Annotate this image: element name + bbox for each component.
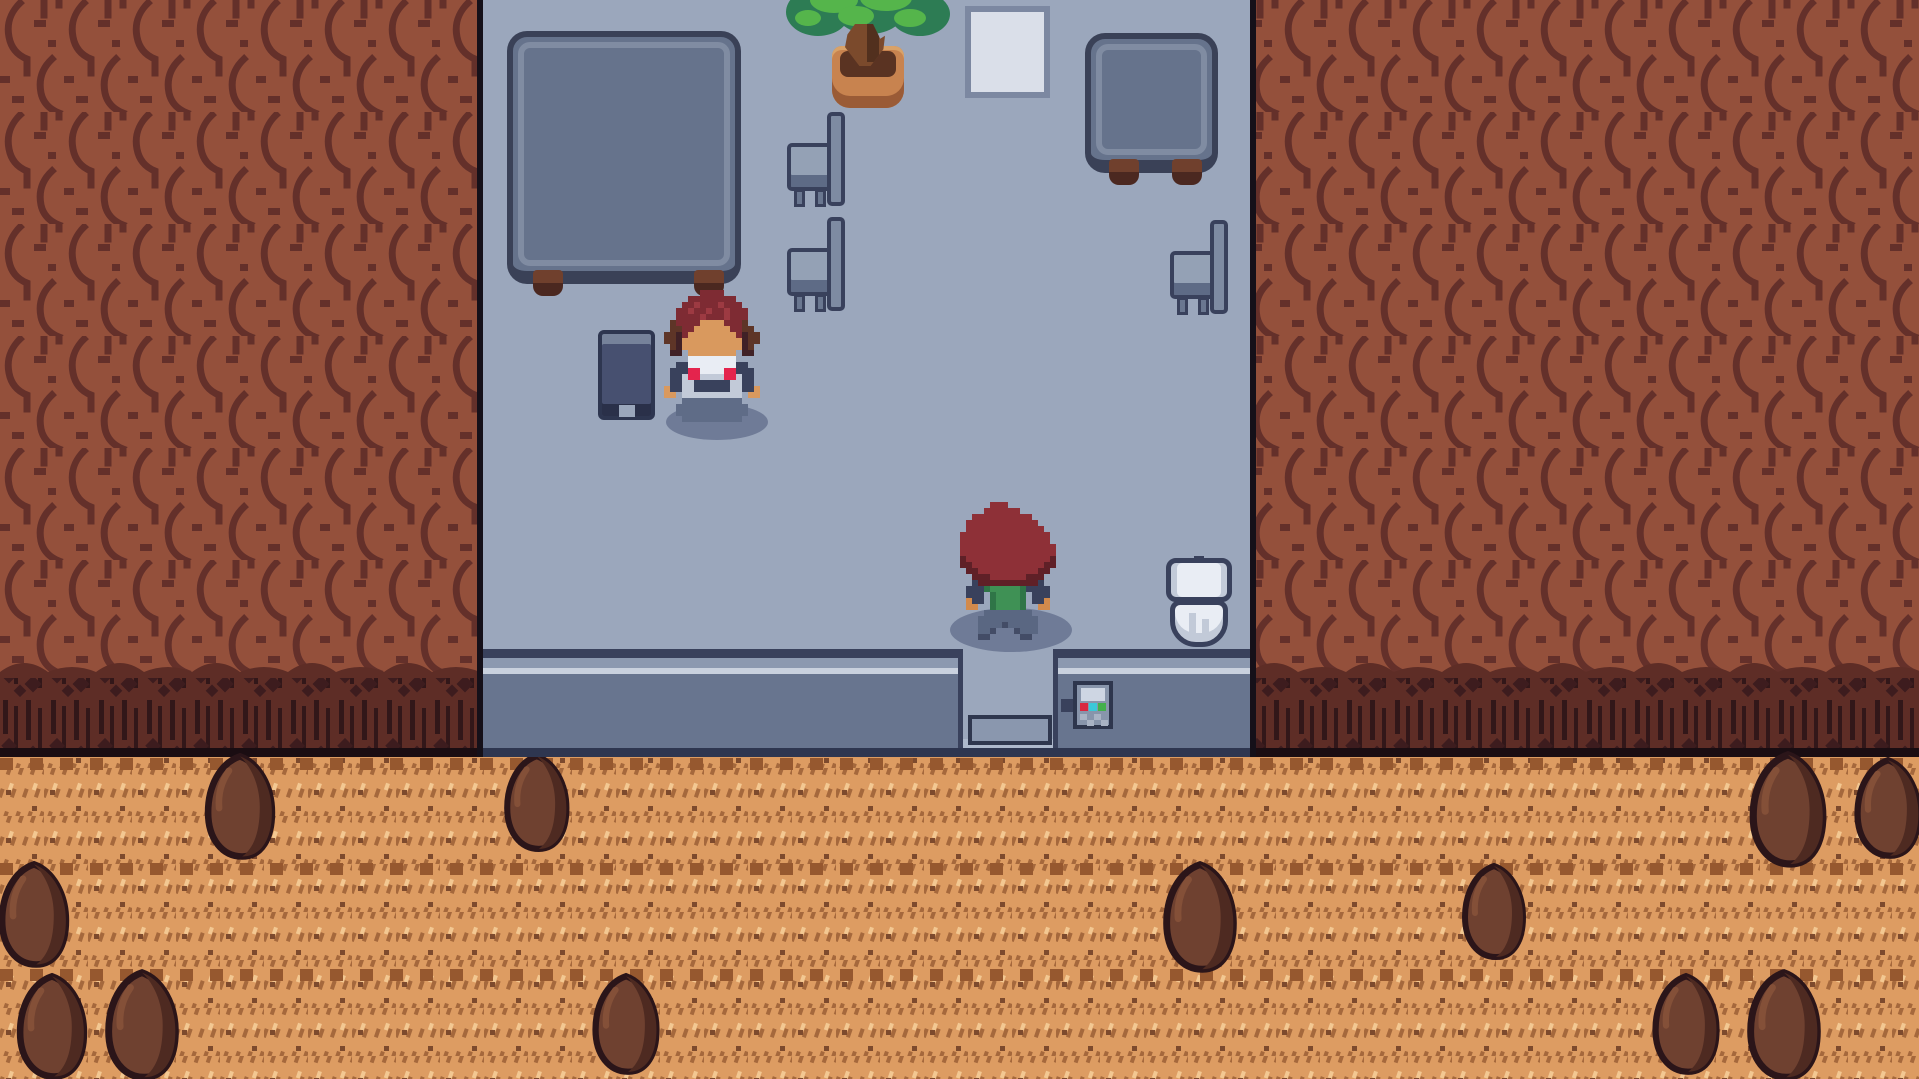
boulder	[507, 756, 566, 849]
chair-leg	[1177, 297, 1188, 315]
boulder	[1753, 755, 1823, 864]
wall-face-left	[483, 674, 958, 748]
table-foot	[1172, 159, 1202, 185]
toilet	[1166, 556, 1236, 648]
left-cliff	[0, 0, 477, 757]
panel-checker	[1080, 714, 1087, 720]
wall-band-left	[483, 658, 958, 668]
boulder	[1465, 866, 1523, 957]
chair-back	[1210, 220, 1228, 314]
chair-left-upper	[787, 110, 845, 210]
panel-cyan-square	[1089, 703, 1097, 711]
boulder	[1858, 760, 1919, 856]
toilet-bowl-mark	[1189, 613, 1196, 637]
poster	[965, 6, 1050, 98]
table-small	[1085, 33, 1218, 173]
door-mat	[968, 715, 1052, 745]
room-interior	[483, 0, 1250, 757]
game-viewport[interactable]	[0, 0, 1919, 1079]
chair-front	[598, 330, 655, 420]
player-character[interactable]	[960, 502, 966, 508]
chair-back	[827, 217, 845, 311]
boulder	[109, 973, 176, 1078]
chair-right	[1170, 218, 1228, 318]
wall-top-line-right	[1058, 649, 1250, 658]
panel-green-square	[1098, 703, 1106, 711]
doorway[interactable]	[958, 649, 1058, 757]
chair-left-lower	[787, 215, 845, 315]
wall-top-line-left	[483, 649, 958, 658]
wall-band-right	[1058, 658, 1250, 668]
panel-screen	[1081, 688, 1105, 701]
npc-attendant[interactable]	[664, 290, 670, 296]
wall-panel[interactable]	[1073, 681, 1113, 729]
right-cliff-base-line	[1256, 748, 1919, 757]
boulder	[1167, 865, 1234, 970]
chair-leg	[794, 189, 805, 207]
panel-checker	[1101, 720, 1108, 726]
right-cliff	[1256, 0, 1919, 757]
chair-back	[827, 112, 845, 206]
table-foot	[533, 270, 563, 296]
chair-leg-gap	[619, 405, 635, 417]
boulder	[1751, 973, 1818, 1078]
toilet-tank	[1166, 558, 1232, 602]
panel-checker	[1094, 714, 1101, 720]
room-right-edge	[1250, 0, 1256, 757]
chair-leg	[794, 294, 805, 312]
chair-leg	[815, 189, 826, 207]
table-foot	[694, 270, 724, 296]
toilet-tank-notch	[1194, 556, 1204, 563]
boulder	[2, 864, 66, 964]
toilet-bowl-mark	[1202, 619, 1209, 637]
chair-leg	[1198, 297, 1209, 315]
panel-checker	[1087, 720, 1094, 726]
panel-red-square	[1080, 703, 1088, 711]
boulder	[596, 976, 657, 1072]
toilet-bowl	[1170, 600, 1228, 647]
player-shadow	[950, 608, 1072, 652]
chair-leg	[815, 294, 826, 312]
boulder	[208, 756, 272, 856]
boulder	[1656, 976, 1717, 1072]
boulder	[20, 976, 84, 1076]
wall-base-line	[483, 748, 1250, 757]
table-foot	[1109, 159, 1139, 185]
table-large	[507, 31, 741, 284]
npc-shadow	[666, 404, 768, 440]
